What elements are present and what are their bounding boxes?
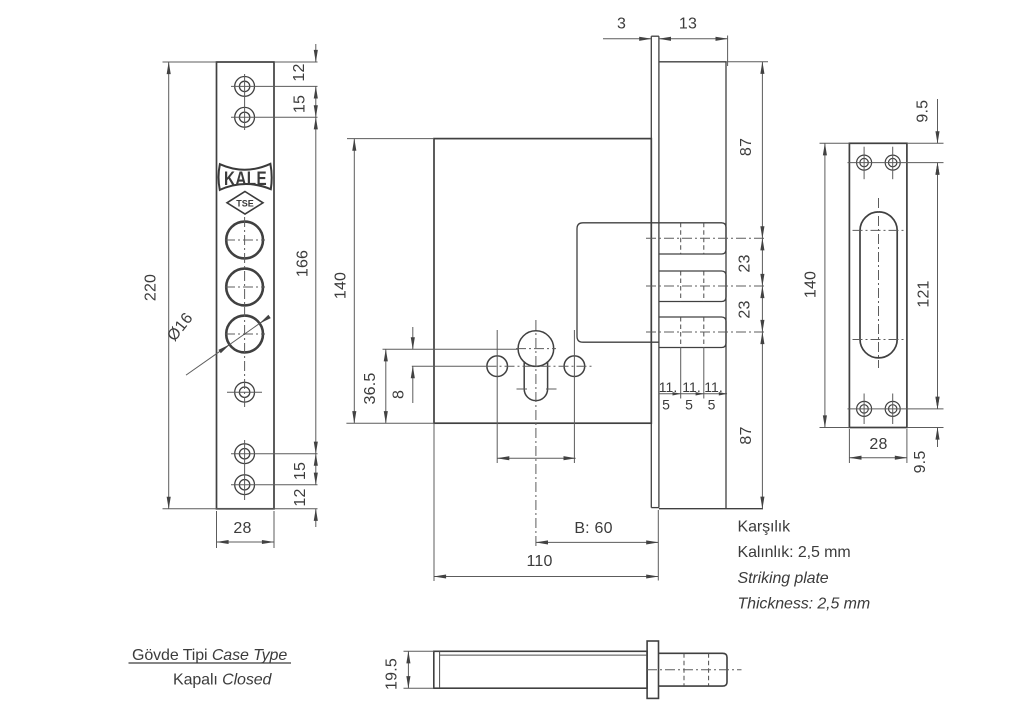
svg-text:140: 140 bbox=[333, 272, 350, 299]
svg-text:19.5: 19.5 bbox=[384, 658, 401, 690]
svg-text:220: 220 bbox=[143, 274, 160, 301]
svg-text:12: 12 bbox=[291, 63, 308, 81]
svg-text:23: 23 bbox=[737, 254, 754, 272]
svg-text:15: 15 bbox=[292, 462, 309, 480]
svg-text:87: 87 bbox=[738, 138, 755, 156]
svg-text:5: 5 bbox=[708, 397, 716, 413]
svg-text:23: 23 bbox=[737, 300, 754, 318]
svg-text:8: 8 bbox=[391, 390, 408, 399]
svg-text:TSE: TSE bbox=[236, 199, 254, 209]
svg-text:Kapalı Closed: Kapalı Closed bbox=[173, 672, 273, 689]
svg-text:9.5: 9.5 bbox=[912, 451, 929, 474]
svg-text:Karşılık: Karşılık bbox=[738, 518, 792, 535]
svg-text:Kalınlık: 2,5 mm: Kalınlık: 2,5 mm bbox=[738, 544, 851, 561]
svg-text:B: 60: B: 60 bbox=[574, 520, 612, 537]
svg-text:87: 87 bbox=[738, 426, 755, 444]
svg-text:12: 12 bbox=[292, 488, 309, 506]
svg-text:5: 5 bbox=[662, 396, 670, 412]
svg-text:11.: 11. bbox=[682, 379, 700, 395]
svg-text:110: 110 bbox=[526, 553, 552, 570]
svg-text:Striking plate: Striking plate bbox=[738, 570, 829, 587]
svg-text:36.5: 36.5 bbox=[362, 373, 379, 405]
svg-text:28: 28 bbox=[233, 520, 251, 537]
svg-text:11.: 11. bbox=[704, 379, 722, 395]
svg-text:5: 5 bbox=[685, 397, 693, 413]
svg-text:121: 121 bbox=[916, 280, 933, 307]
svg-text:15: 15 bbox=[292, 95, 309, 113]
svg-text:3: 3 bbox=[617, 16, 626, 33]
svg-text:KALE: KALE bbox=[224, 167, 267, 189]
svg-text:166: 166 bbox=[295, 250, 312, 277]
svg-text:Thickness: 2,5 mm: Thickness: 2,5 mm bbox=[738, 596, 871, 613]
svg-text:13: 13 bbox=[679, 16, 697, 33]
svg-text:140: 140 bbox=[803, 271, 820, 298]
svg-text:Gövde Tipi Case Type: Gövde Tipi Case Type bbox=[132, 647, 287, 664]
svg-text:11.: 11. bbox=[659, 379, 677, 395]
svg-text:28: 28 bbox=[869, 436, 887, 453]
svg-text:9.5: 9.5 bbox=[915, 100, 932, 123]
